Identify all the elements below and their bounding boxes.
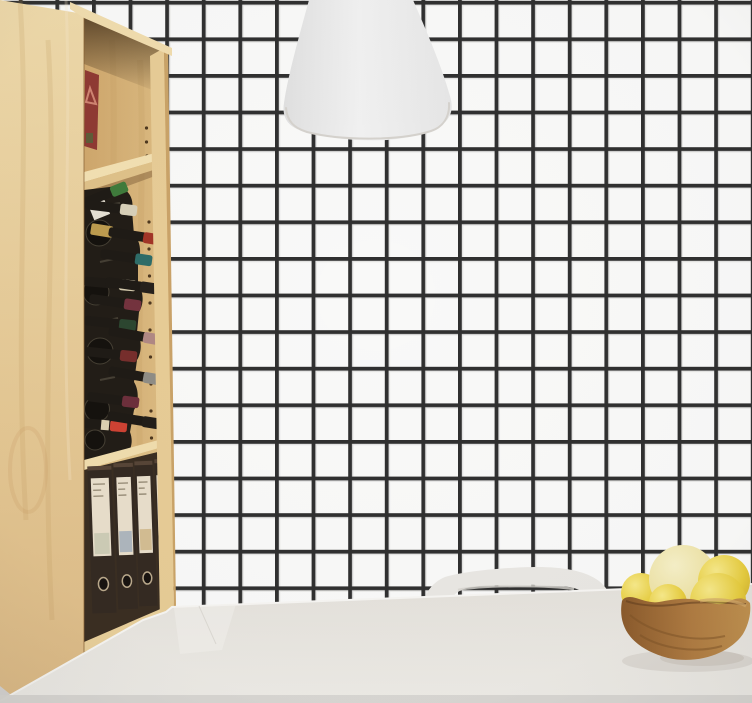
vignette-overlay [0,0,752,703]
kitchen-scene: Minimal kitchen corner: black grid-tile … [0,0,752,703]
